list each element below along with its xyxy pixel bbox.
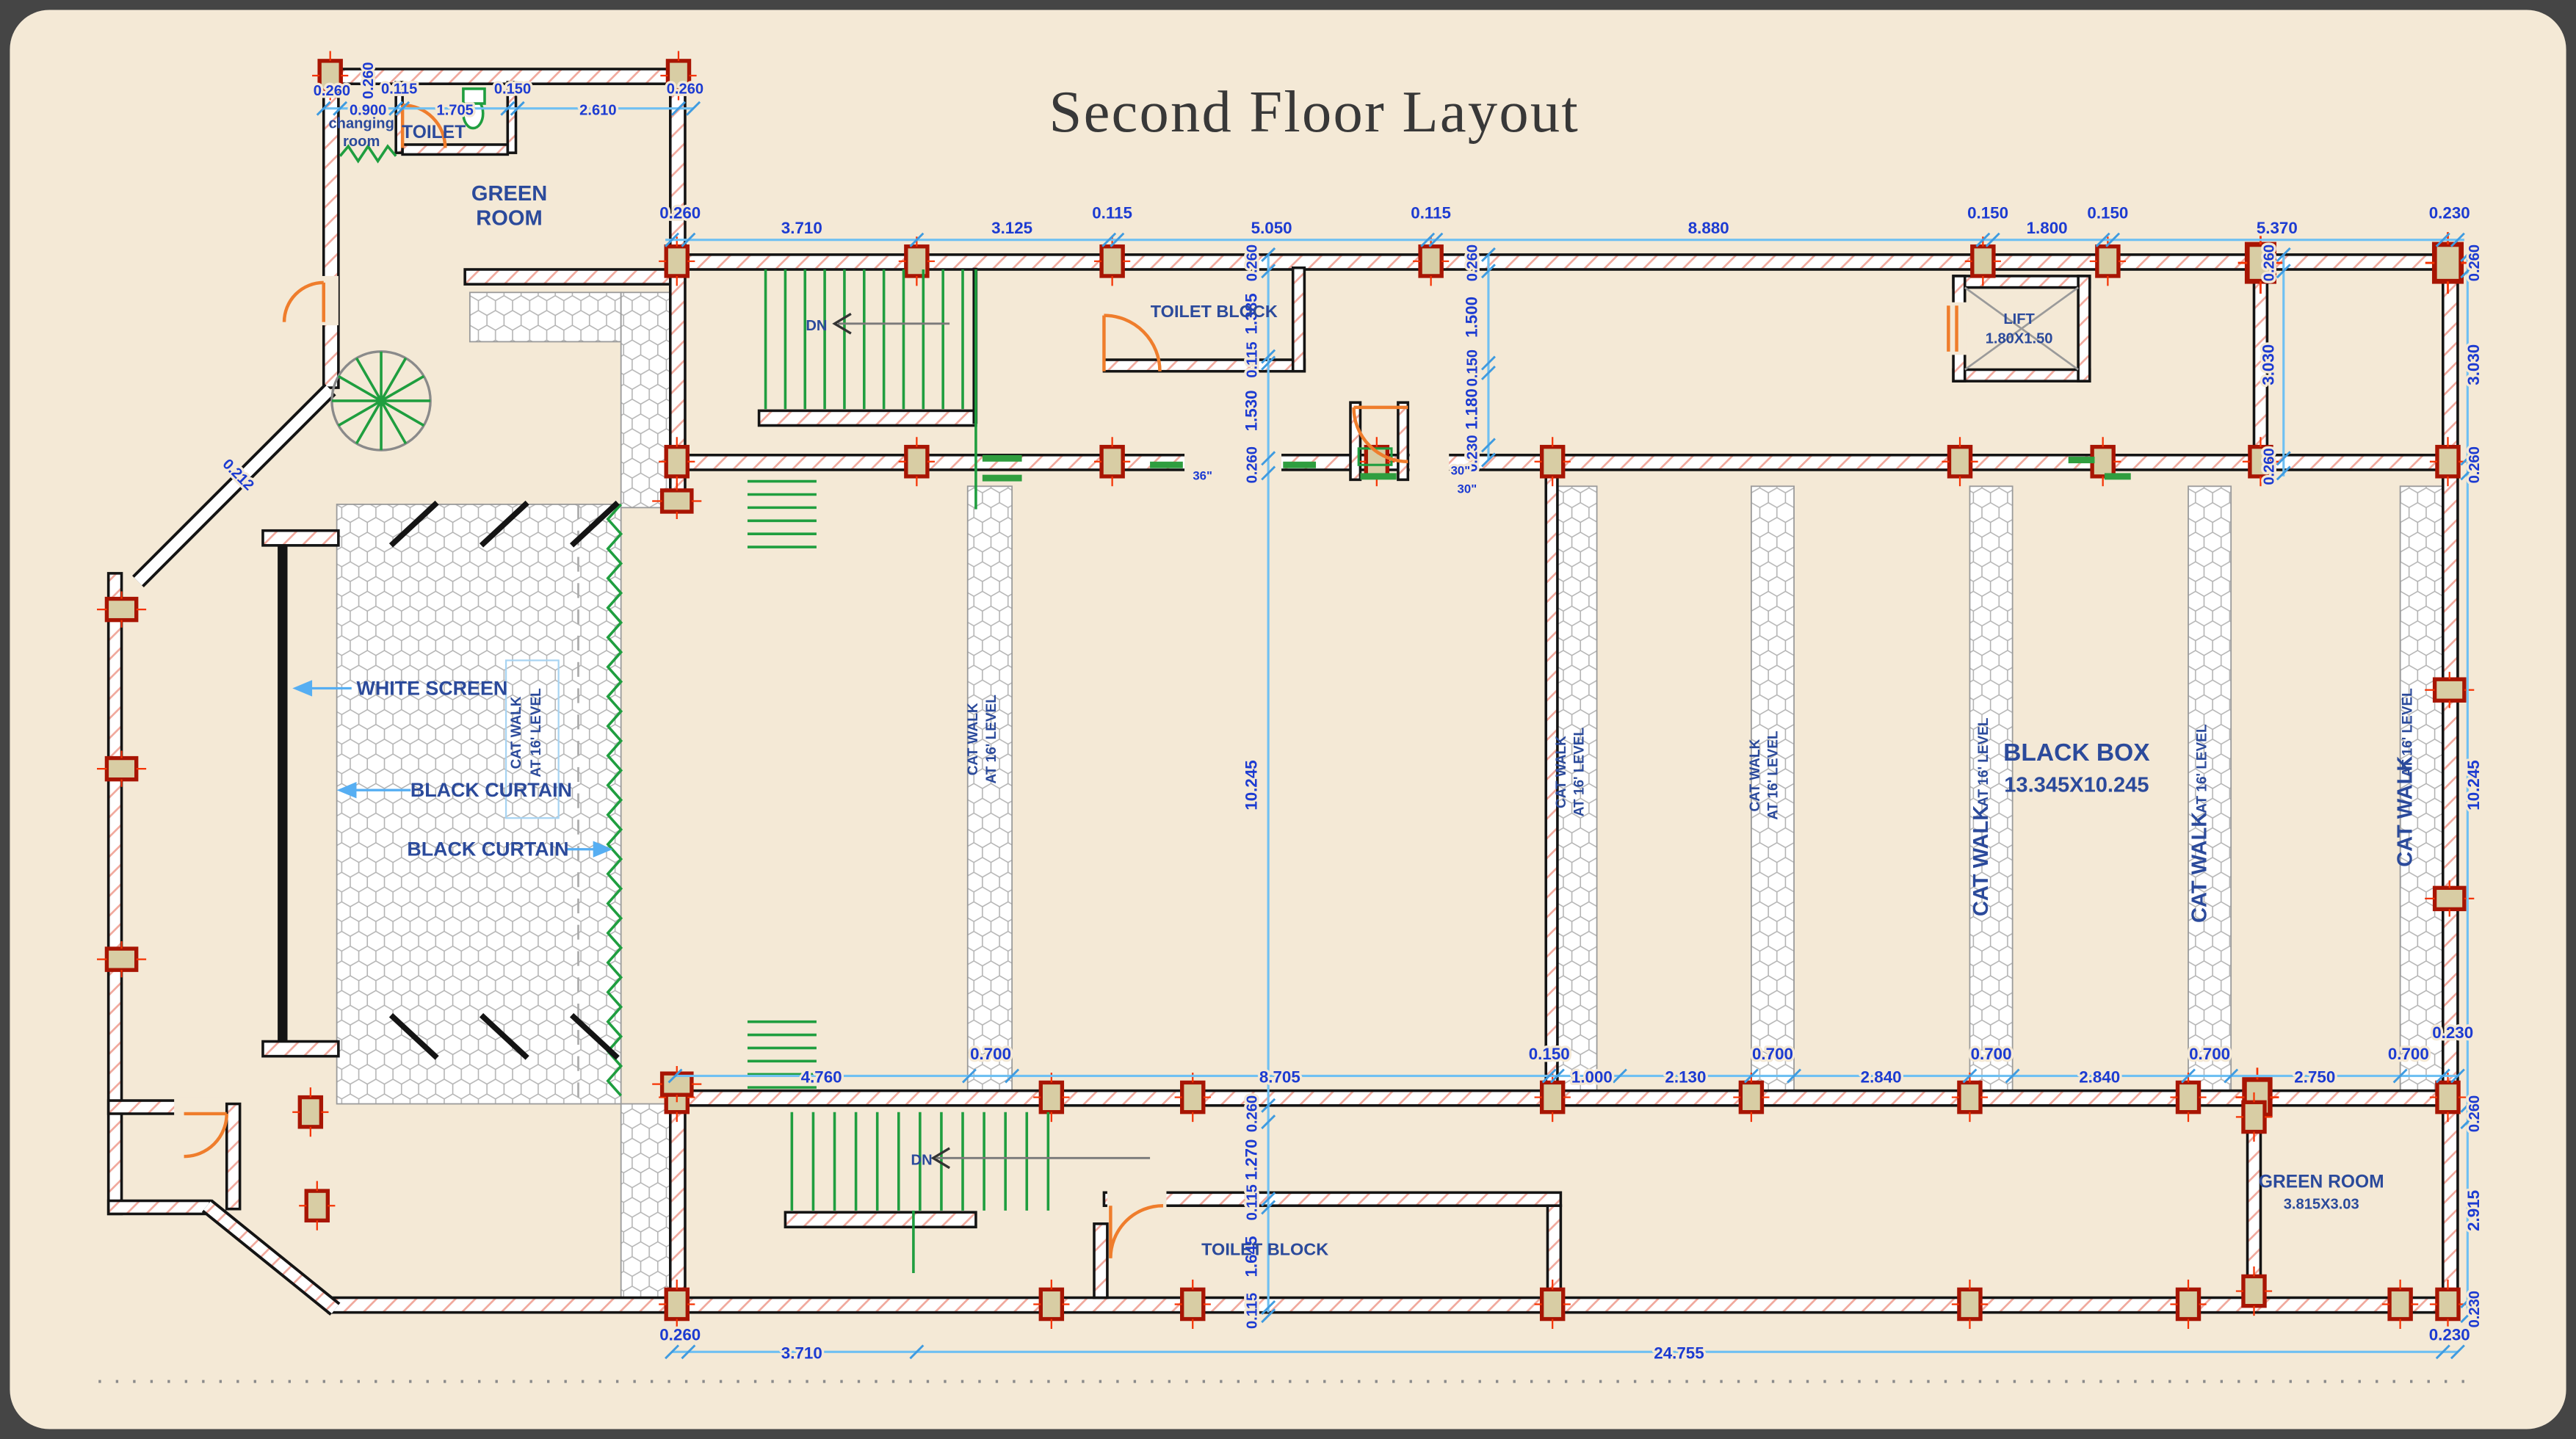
label-black-curtain: BLACK CURTAIN: [407, 838, 568, 860]
dim-label: 0.260: [1244, 244, 1260, 281]
door-sill: [1360, 473, 1396, 479]
dim-label: 1.000: [1571, 1068, 1613, 1086]
dim-label: 0.230: [2429, 1326, 2470, 1344]
dim-label: 0.700: [1752, 1045, 1793, 1063]
label-cat-walk: CAT WALK: [1969, 805, 1993, 916]
dim-label: 0.260: [1244, 1095, 1260, 1132]
dim-label: 5.370: [2257, 219, 2298, 237]
dim-label: 24.755: [1654, 1344, 1704, 1362]
label-black-box-size: 13.345X10.245: [2004, 773, 2149, 797]
dim-label: 0.230: [2429, 204, 2470, 222]
dim-label: 0.260: [1464, 244, 1480, 281]
dim-label: 0.260: [2467, 446, 2483, 483]
dim-label: 0.230: [2432, 1023, 2473, 1042]
dim-label: 0.230: [2467, 1291, 2483, 1327]
dim-label: 0.700: [2189, 1045, 2230, 1063]
dim-label: 3.125: [991, 219, 1032, 237]
dim-label: 10.245: [2464, 760, 2483, 810]
dim-label: 8.705: [1259, 1068, 1300, 1086]
dim-label: 3.710: [781, 219, 822, 237]
dim-label: 0.260: [2261, 448, 2277, 485]
dim-label: 1.180: [1462, 388, 1480, 429]
dim-label: 2.840: [2079, 1068, 2120, 1086]
dim-label: 8.880: [1688, 219, 1729, 237]
label-black-curtain: BLACK CURTAIN: [410, 779, 572, 801]
label-dn: DN: [806, 318, 827, 334]
label-cat-walk: CAT WALK: [1554, 736, 1569, 808]
door-sill: [983, 475, 1022, 482]
label-changing-room: room: [343, 134, 380, 150]
dim-label: 2.130: [1665, 1068, 1706, 1086]
label-cat-walk: CAT WALK: [966, 703, 981, 775]
dim-label: 3.710: [781, 1344, 822, 1362]
label-green-room-top: GREEN: [471, 182, 547, 206]
label-cat-walk-level: AT 16' LEVEL: [2400, 688, 2415, 778]
label-dn: DN: [911, 1152, 933, 1168]
label-cat-walk-level: AT 16' LEVEL: [529, 688, 544, 778]
dim-label: 10.245: [1242, 760, 1260, 810]
dim-label: 0.700: [970, 1045, 1011, 1063]
dim-label: 4.760: [801, 1068, 842, 1086]
door-sill: [2069, 457, 2095, 463]
dim-label: 0.260: [314, 83, 350, 99]
dim-label: 1.705: [437, 103, 474, 119]
label-white-screen: WHITE SCREEN: [357, 677, 508, 699]
dim-label: 0.115: [381, 81, 417, 98]
label-cat-walk-level: AT 16' LEVEL: [984, 695, 999, 784]
dim-label: 0.700: [2388, 1045, 2429, 1063]
label-toilet-block-top: TOILET BLOCK: [1151, 302, 1278, 321]
dim-label: 30": [1451, 464, 1471, 478]
floor-plan-canvas: Second Floor Layout: [0, 0, 2576, 1439]
dim-label: 0.260: [667, 81, 703, 98]
dim-label: 0.150: [1464, 349, 1480, 386]
dim-label: 2.915: [2464, 1190, 2483, 1231]
dim-label: 0.260: [2467, 244, 2483, 281]
door-sill: [983, 455, 1022, 462]
label-cat-walk-level: AT 16' LEVEL: [2195, 724, 2210, 813]
toilet-cistern: [463, 89, 485, 104]
dim-label: 0.115: [1244, 341, 1260, 377]
door-sill: [1150, 462, 1183, 468]
dim-label: 5.050: [1251, 219, 1292, 237]
label-green-room-top: ROOM: [476, 207, 542, 231]
dim-label: 30": [1458, 482, 1477, 496]
dim-label: 1.500: [1462, 297, 1480, 338]
label-green-room-bottom: GREEN ROOM: [2259, 1172, 2384, 1192]
dim-label: 3.030: [2259, 344, 2277, 385]
label-green-room-bottom-size: 3.815X3.03: [2284, 1197, 2359, 1213]
dim-label: 2.840: [1861, 1068, 1902, 1086]
white-screen-wall: [278, 545, 287, 1042]
label-cat-walk: CAT WALK: [1748, 739, 1763, 811]
dim-label: 0.115: [1411, 204, 1451, 222]
dim-label: 0.115: [1244, 1184, 1260, 1220]
label-cat-walk-level: AT 16' LEVEL: [1766, 731, 1781, 820]
dim-label: 2.750: [2294, 1068, 2335, 1086]
door-sill: [2105, 473, 2131, 479]
dim-label: 0.150: [1529, 1045, 1570, 1063]
dim-label: 0.260: [361, 62, 377, 99]
dim-label: 0.150: [1967, 204, 2008, 222]
label-changing-room: changing: [328, 116, 394, 132]
label-cat-walk: CAT WALK: [509, 696, 524, 769]
label-lift: LIFT: [2003, 311, 2035, 327]
dim-label: 1.530: [1242, 390, 1260, 431]
dim-label: 0.260: [2261, 244, 2277, 281]
dim-label: 36": [1193, 468, 1212, 482]
door-sill: [1283, 462, 1316, 468]
dim-label: 0.260: [2467, 1095, 2483, 1132]
dim-label: 0.700: [1971, 1045, 2012, 1063]
dim-label: 3.030: [2464, 344, 2483, 385]
catwalk-strip: [968, 486, 1012, 1090]
dim-label: 0.115: [1092, 204, 1132, 222]
dim-label: 0.150: [2087, 204, 2128, 222]
dim-label: 1.270: [1242, 1139, 1260, 1181]
label-lift-size: 1.80X1.50: [1986, 331, 2053, 347]
label-black-box: BLACK BOX: [2003, 739, 2150, 766]
dim-label: 0.150: [494, 81, 531, 98]
label-cat-walk-level: AT 16' LEVEL: [1976, 717, 1991, 807]
label-cat-walk: CAT WALK: [2188, 812, 2212, 923]
dim-label: 0.260: [659, 204, 701, 222]
dim-label: 0.115: [1244, 1293, 1260, 1329]
page-title: Second Floor Layout: [1049, 79, 1580, 145]
label-toilet-block-bottom: TOILET BLOCK: [1201, 1239, 1328, 1258]
dim-label: 0.260: [659, 1326, 701, 1344]
label-cat-walk-level: AT 16' LEVEL: [1572, 728, 1588, 817]
dim-label: 2.610: [579, 103, 616, 119]
dim-label: 0.260: [1244, 446, 1260, 483]
label-toilet: TOILET: [402, 123, 466, 142]
dim-label: 1.800: [2027, 219, 2068, 237]
